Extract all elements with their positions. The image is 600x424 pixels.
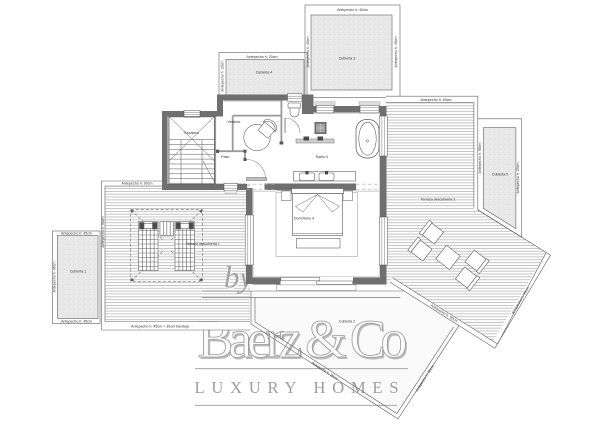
svg-text:Antepecho h: 95cm: Antepecho h: 95cm xyxy=(478,143,482,174)
svg-text:Cubierta 1: Cubierta 1 xyxy=(70,269,87,273)
svg-text:Antepecho h: 45cm: Antepecho h: 45cm xyxy=(61,232,92,236)
svg-text:Vestidor: Vestidor xyxy=(227,120,241,124)
svg-text:Antepecho h: 45cm + 30cm band: Antepecho h: 45cm + 30cm bandeja xyxy=(131,324,189,328)
svg-text:Antepecho h: 40cm: Antepecho h: 40cm xyxy=(337,8,368,12)
svg-text:Antepecho h: 90cm: Antepecho h: 90cm xyxy=(101,217,105,248)
svg-text:Cubierta 5: Cubierta 5 xyxy=(492,173,508,177)
svg-text:Cubierta 2: Cubierta 2 xyxy=(339,319,355,323)
svg-text:Baerz & Co: Baerz & Co xyxy=(198,309,408,369)
svg-text:Escalera: Escalera xyxy=(184,131,199,135)
svg-text:Antepecho h: 90cm: Antepecho h: 90cm xyxy=(421,98,452,102)
svg-text:Antepecho h: 40cm: Antepecho h: 40cm xyxy=(394,37,398,68)
svg-text:LUXURY HOMES: LUXURY HOMES xyxy=(195,378,407,397)
svg-text:Cubierta 4: Cubierta 4 xyxy=(256,70,273,74)
svg-text:Antepecho h: 90cm: Antepecho h: 90cm xyxy=(122,182,153,186)
svg-text:Antepecho h: 20cm: Antepecho h: 20cm xyxy=(247,55,278,59)
svg-text:Antepecho h: 40cm: Antepecho h: 40cm xyxy=(306,37,310,68)
svg-text:Terraza descubierta 2: Terraza descubierta 2 xyxy=(421,198,456,202)
svg-text:Antepecho h: 45cm: Antepecho h: 45cm xyxy=(61,319,92,323)
svg-text:Baño 4: Baño 4 xyxy=(316,155,328,159)
svg-text:Antepecho h: 20cm: Antepecho h: 20cm xyxy=(516,163,520,194)
svg-text:Cubierta 3: Cubierta 3 xyxy=(339,57,356,61)
svg-text:Antepecho h: 45cm: Antepecho h: 45cm xyxy=(52,262,56,293)
svg-text:Antepecho h: 20cm: Antepecho h: 20cm xyxy=(221,61,225,92)
svg-text:Paso: Paso xyxy=(221,155,229,159)
svg-text:Terraza descubierta 1: Terraza descubierta 1 xyxy=(186,242,220,246)
svg-text:Dormitorio 4: Dormitorio 4 xyxy=(294,216,314,220)
